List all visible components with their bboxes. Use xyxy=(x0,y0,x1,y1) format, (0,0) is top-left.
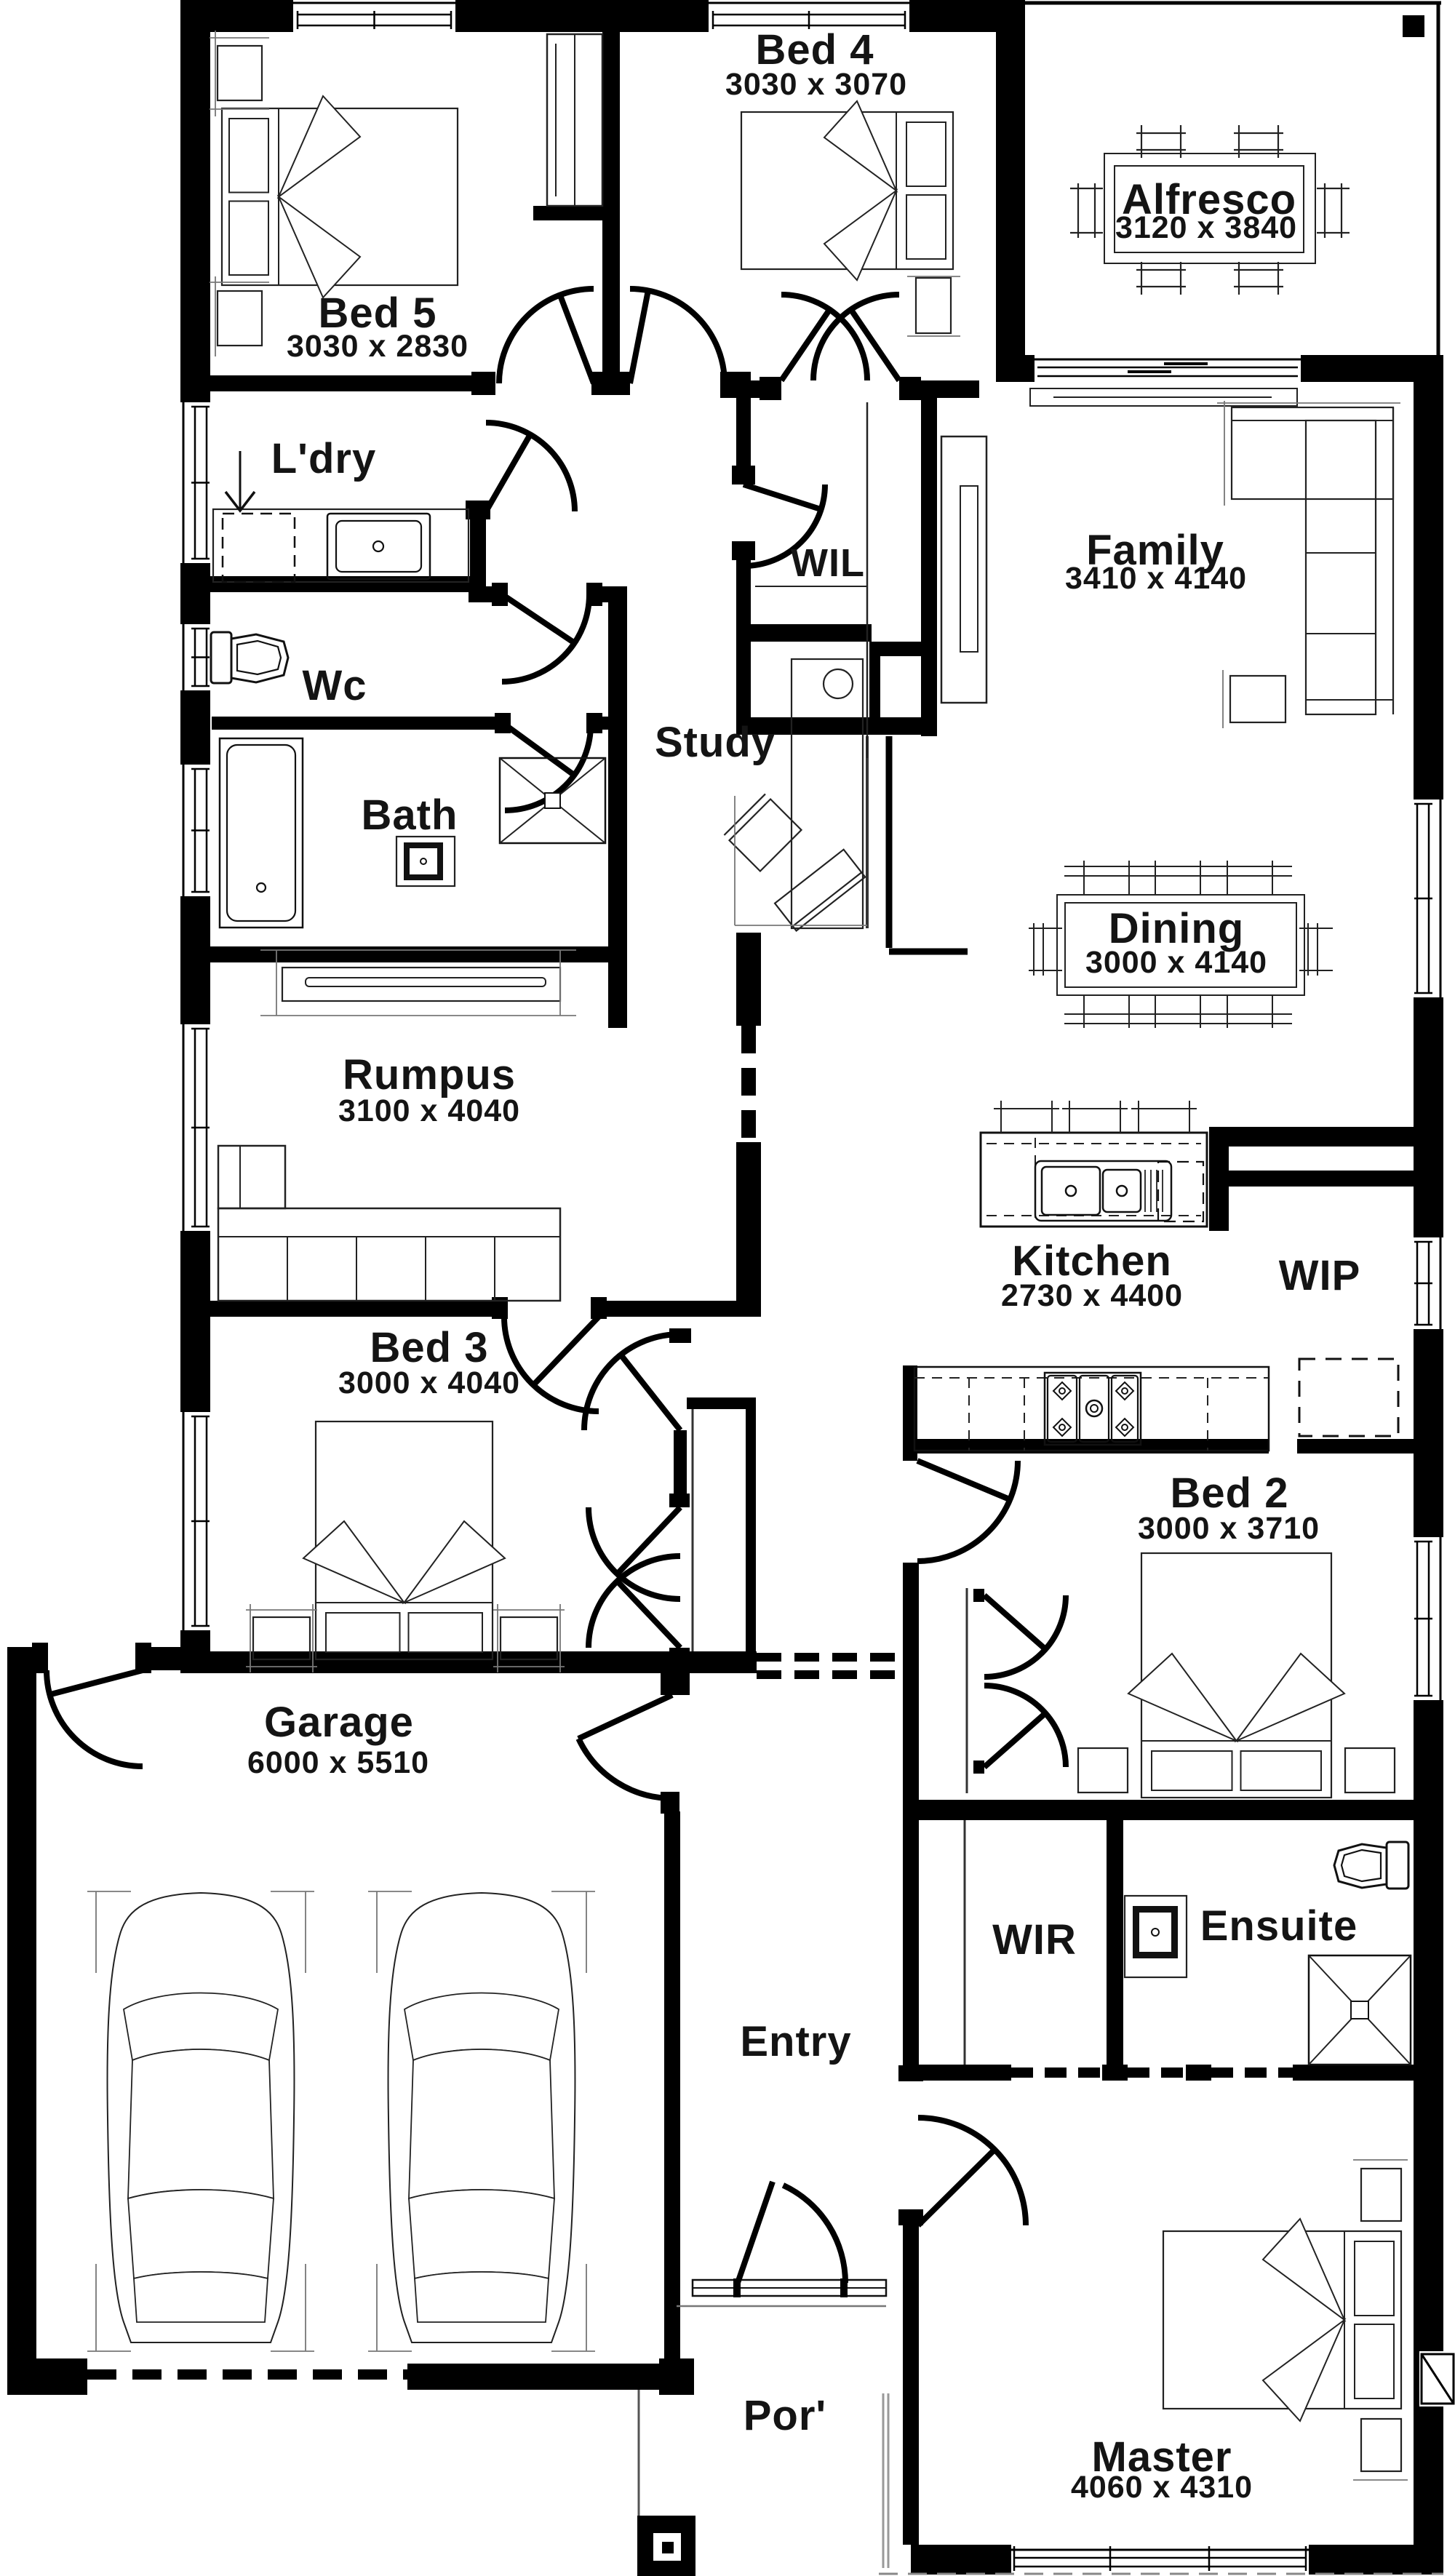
svg-text:6000 x 5510: 6000 x 5510 xyxy=(247,1745,429,1780)
svg-text:WIP: WIP xyxy=(1279,1252,1361,1299)
svg-text:Garage: Garage xyxy=(264,1699,414,1746)
svg-text:Wc: Wc xyxy=(303,662,367,709)
svg-text:Bed 3: Bed 3 xyxy=(370,1324,489,1371)
svg-text:Bath: Bath xyxy=(362,791,458,839)
svg-text:3000 x 4040: 3000 x 4040 xyxy=(338,1365,520,1400)
svg-text:L'dry: L'dry xyxy=(271,435,376,482)
svg-text:3120 x 3840: 3120 x 3840 xyxy=(1115,210,1297,245)
svg-text:Ensuite: Ensuite xyxy=(1200,1902,1358,1950)
svg-text:3030 x 2830: 3030 x 2830 xyxy=(287,329,469,364)
svg-text:4060 x 4310: 4060 x 4310 xyxy=(1071,2470,1253,2505)
svg-text:3410 x 4140: 3410 x 4140 xyxy=(1065,561,1247,596)
svg-text:2730 x 4400: 2730 x 4400 xyxy=(1001,1278,1183,1313)
svg-text:Study: Study xyxy=(655,719,776,766)
svg-text:3030 x 3070: 3030 x 3070 xyxy=(725,67,907,102)
svg-text:3000 x 4140: 3000 x 4140 xyxy=(1085,945,1267,980)
svg-text:Rumpus: Rumpus xyxy=(343,1051,516,1098)
svg-text:WIR: WIR xyxy=(992,1916,1077,1963)
svg-text:Entry: Entry xyxy=(740,2018,851,2065)
svg-text:Por': Por' xyxy=(744,2392,826,2439)
svg-text:WIL: WIL xyxy=(791,541,865,585)
svg-text:3100 x 4040: 3100 x 4040 xyxy=(338,1093,520,1128)
svg-text:3000 x 3710: 3000 x 3710 xyxy=(1138,1511,1320,1546)
svg-text:Bed 2: Bed 2 xyxy=(1171,1470,1289,1517)
